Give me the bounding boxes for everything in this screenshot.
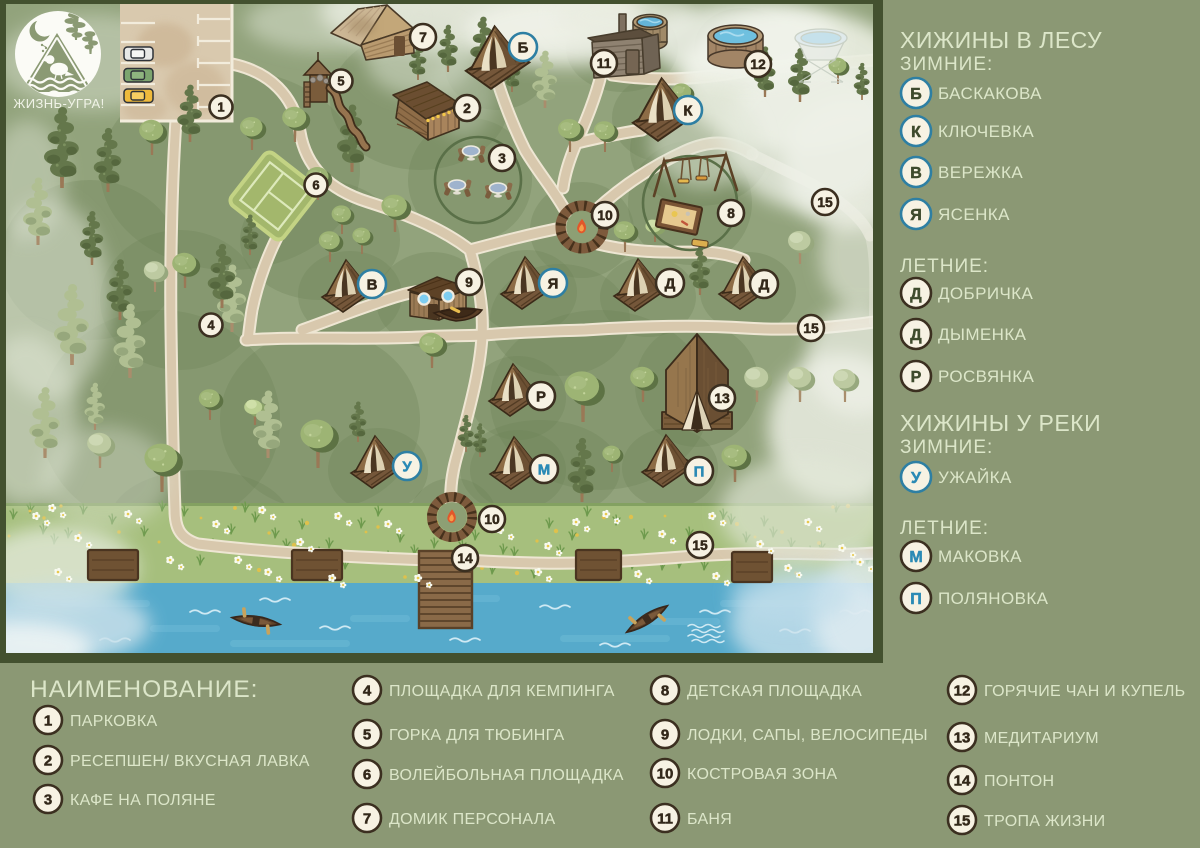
svg-text:КЛЮЧЕВКА: КЛЮЧЕВКА <box>938 122 1034 141</box>
svg-text:ТРОПА ЖИЗНИ: ТРОПА ЖИЗНИ <box>984 813 1105 830</box>
svg-text:ПАРКОВКА: ПАРКОВКА <box>70 713 158 730</box>
svg-text:10: 10 <box>484 511 500 527</box>
svg-text:11: 11 <box>597 55 612 71</box>
svg-text:УЖАЙКА: УЖАЙКА <box>938 468 1012 487</box>
svg-text:9: 9 <box>465 274 473 290</box>
svg-text:ХИЖИНЫ В ЛЕСУ: ХИЖИНЫ В ЛЕСУ <box>900 27 1102 53</box>
svg-text:3: 3 <box>498 150 506 166</box>
svg-text:14: 14 <box>457 550 473 566</box>
svg-text:8: 8 <box>727 205 735 221</box>
svg-text:10: 10 <box>597 207 613 223</box>
svg-text:БАСКАКОВА: БАСКАКОВА <box>938 84 1042 103</box>
svg-text:ЛОДКИ, САПЫ, ВЕЛОСИПЕДЫ: ЛОДКИ, САПЫ, ВЕЛОСИПЕДЫ <box>687 727 928 744</box>
svg-text:ДОБРИЧКА: ДОБРИЧКА <box>938 284 1033 303</box>
svg-text:11: 11 <box>657 810 673 827</box>
svg-text:ВОЛЕЙБОЛЬНАЯ ПЛОЩАДКА: ВОЛЕЙБОЛЬНАЯ ПЛОЩАДКА <box>389 765 624 784</box>
svg-text:ЗИМНИЕ:: ЗИМНИЕ: <box>900 54 993 75</box>
svg-text:ВЕРЕЖКА: ВЕРЕЖКА <box>938 163 1023 182</box>
svg-text:КОСТРОВАЯ ЗОНА: КОСТРОВАЯ ЗОНА <box>687 766 837 783</box>
svg-text:7: 7 <box>419 29 427 45</box>
svg-text:2: 2 <box>463 100 471 116</box>
svg-text:Р: Р <box>911 369 922 386</box>
svg-text:М: М <box>538 461 551 478</box>
svg-text:БАНЯ: БАНЯ <box>687 811 732 828</box>
svg-text:12: 12 <box>954 682 971 699</box>
svg-text:14: 14 <box>954 772 971 789</box>
svg-text:М: М <box>909 549 922 566</box>
svg-text:К: К <box>911 124 921 141</box>
svg-text:ПОНТОН: ПОНТОН <box>984 773 1054 790</box>
svg-text:12: 12 <box>750 56 766 72</box>
svg-text:15: 15 <box>803 320 819 336</box>
svg-text:Д: Д <box>759 276 770 293</box>
svg-text:МАКОВКА: МАКОВКА <box>938 547 1022 566</box>
svg-text:13: 13 <box>954 729 971 746</box>
svg-text:ГОРКА ДЛЯ ТЮБИНГА: ГОРКА ДЛЯ ТЮБИНГА <box>389 727 565 744</box>
svg-text:6: 6 <box>312 178 319 193</box>
svg-text:15: 15 <box>954 812 971 829</box>
svg-text:3: 3 <box>44 791 52 808</box>
svg-text:В: В <box>910 165 922 182</box>
svg-text:Р: Р <box>536 388 546 405</box>
svg-text:К: К <box>683 102 693 119</box>
svg-text:Д: Д <box>910 286 922 303</box>
svg-text:13: 13 <box>714 390 730 406</box>
svg-text:РОСВЯНКА: РОСВЯНКА <box>938 367 1034 386</box>
svg-text:4: 4 <box>207 318 215 333</box>
svg-text:ПОЛЯНОВКА: ПОЛЯНОВКА <box>938 589 1049 608</box>
svg-text:Я: Я <box>910 207 922 224</box>
svg-text:В: В <box>367 276 378 293</box>
svg-text:Я: Я <box>548 275 559 292</box>
svg-text:9: 9 <box>661 726 669 743</box>
svg-text:П: П <box>694 463 705 480</box>
svg-text:ДОМИК ПЕРСОНАЛА: ДОМИК ПЕРСОНАЛА <box>389 811 555 828</box>
svg-text:1: 1 <box>217 100 224 115</box>
svg-text:10: 10 <box>657 765 674 782</box>
svg-text:У: У <box>911 470 922 487</box>
svg-text:5: 5 <box>363 726 371 743</box>
svg-text:КАФЕ НА ПОЛЯНЕ: КАФЕ НА ПОЛЯНЕ <box>70 792 216 809</box>
svg-text:НАИМЕНОВАНИЕ:: НАИМЕНОВАНИЕ: <box>30 676 258 703</box>
svg-text:ЛЕТНИЕ:: ЛЕТНИЕ: <box>900 256 989 277</box>
svg-text:ЛЕТНИЕ:: ЛЕТНИЕ: <box>900 518 989 539</box>
svg-text:ЯСЕНКА: ЯСЕНКА <box>938 205 1010 224</box>
svg-text:ХИЖИНЫ У РЕКИ: ХИЖИНЫ У РЕКИ <box>900 410 1101 436</box>
svg-text:8: 8 <box>661 682 669 699</box>
svg-text:6: 6 <box>363 766 371 783</box>
svg-text:Б: Б <box>518 39 529 56</box>
svg-text:4: 4 <box>363 682 372 699</box>
svg-text:2: 2 <box>44 752 52 769</box>
svg-text:Б: Б <box>910 86 922 103</box>
svg-text:П: П <box>910 591 922 608</box>
svg-text:5: 5 <box>337 74 344 89</box>
svg-text:1: 1 <box>44 712 52 729</box>
svg-text:ПЛОЩАДКА ДЛЯ КЕМПИНГА: ПЛОЩАДКА ДЛЯ КЕМПИНГА <box>389 683 615 700</box>
svg-text:ЗИМНИЕ:: ЗИМНИЕ: <box>900 437 993 458</box>
svg-text:ДЕТСКАЯ ПЛОЩАДКА: ДЕТСКАЯ ПЛОЩАДКА <box>687 683 862 700</box>
svg-text:15: 15 <box>817 194 833 210</box>
svg-text:15: 15 <box>692 537 708 553</box>
svg-text:МЕДИТАРИУМ: МЕДИТАРИУМ <box>984 730 1099 747</box>
svg-text:Д: Д <box>665 275 676 292</box>
svg-text:ДЫМЕНКА: ДЫМЕНКА <box>938 325 1027 344</box>
svg-text:Д: Д <box>910 327 922 344</box>
svg-text:РЕСЕПШЕН/ ВКУСНАЯ ЛАВКА: РЕСЕПШЕН/ ВКУСНАЯ ЛАВКА <box>70 753 310 770</box>
svg-text:У: У <box>402 458 412 475</box>
svg-text:7: 7 <box>363 810 371 827</box>
svg-text:ГОРЯЧИЕ ЧАН И КУПЕЛЬ: ГОРЯЧИЕ ЧАН И КУПЕЛЬ <box>984 683 1185 700</box>
